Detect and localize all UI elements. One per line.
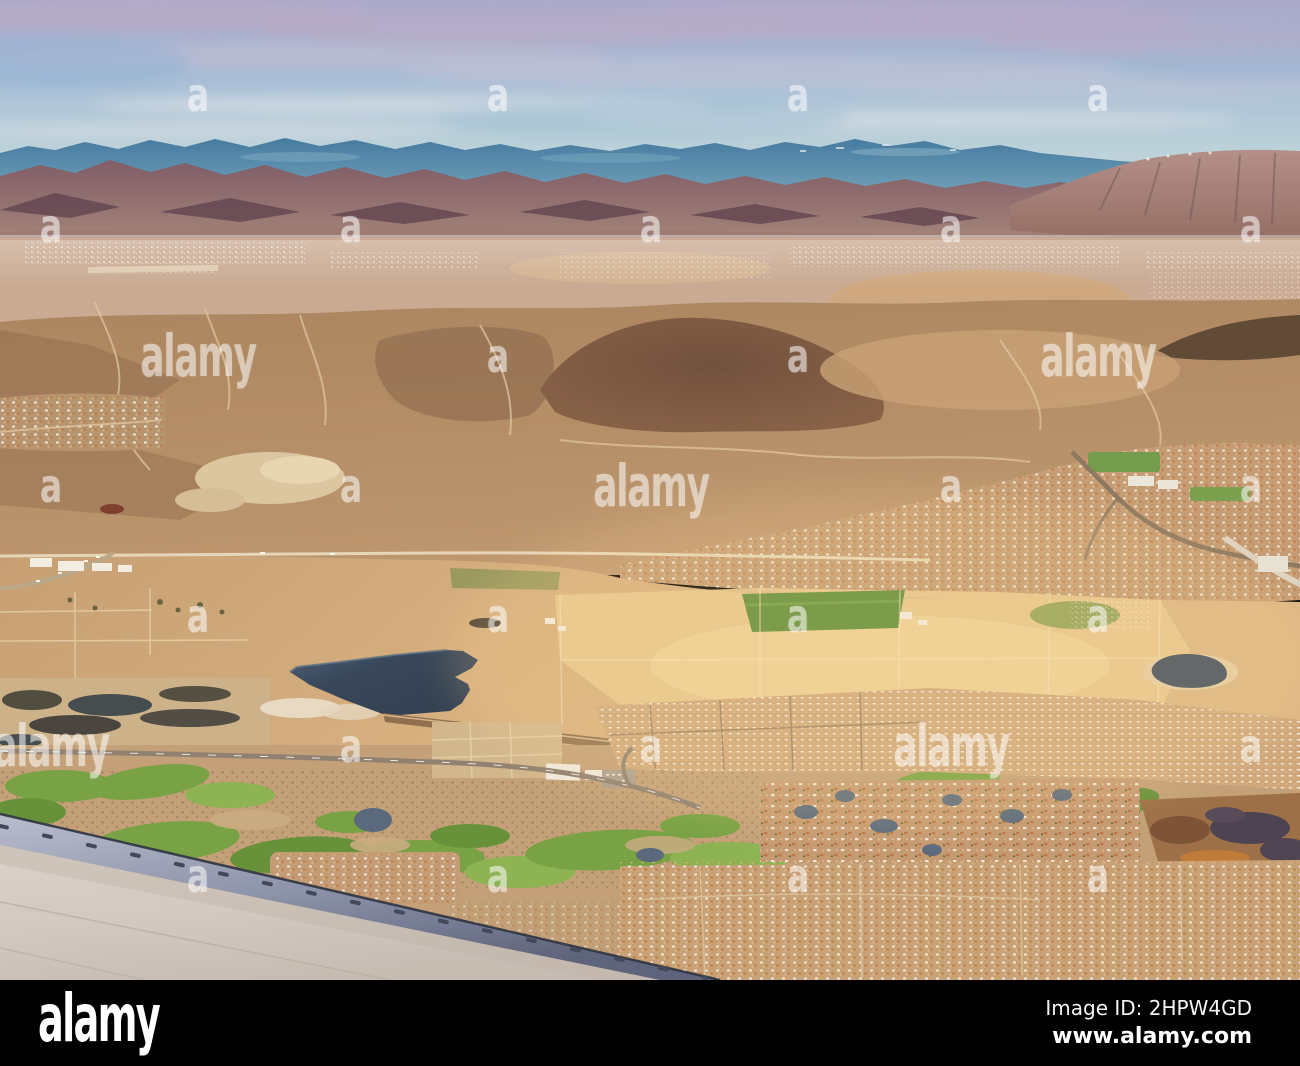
aerial-photo: aaaaaaaaaaaaaaaaaaaaaaaaaaalamyalamyalam… xyxy=(0,0,1300,980)
alamy-footer-bar: alamy Image ID: 2HPW4GD www.alamy.com xyxy=(0,980,1300,1066)
photo-tint xyxy=(0,0,1300,980)
alamy-logo: alamy xyxy=(38,986,159,1052)
stock-photo-page: aaaaaaaaaaaaaaaaaaaaaaaaaaalamyalamyalam… xyxy=(0,0,1300,1066)
alamy-url-text: www.alamy.com xyxy=(1045,1024,1252,1049)
image-id-text: Image ID: 2HPW4GD xyxy=(1045,997,1252,1020)
